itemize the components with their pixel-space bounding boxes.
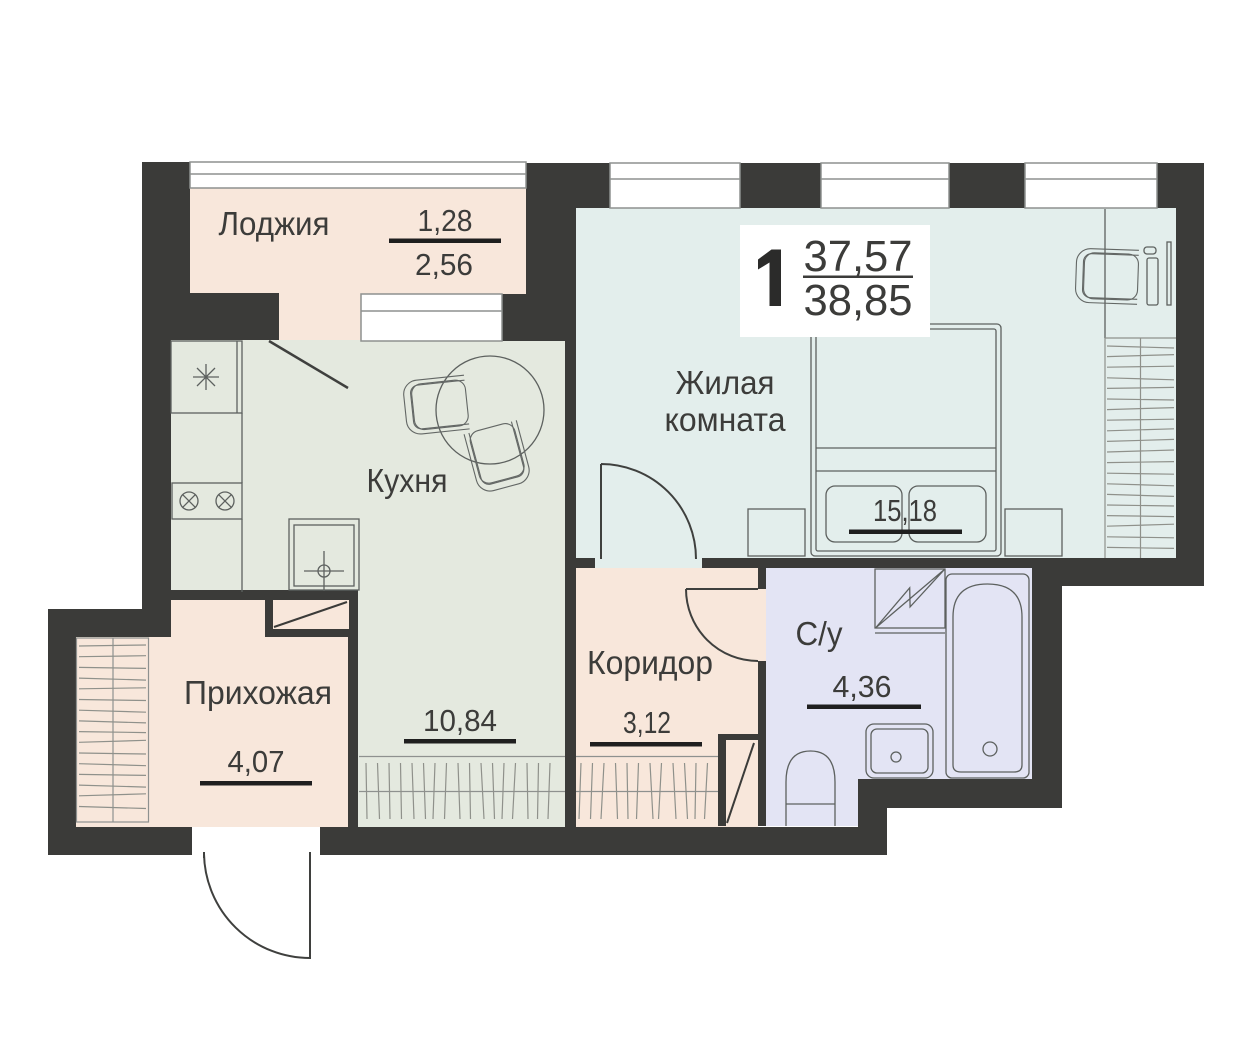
svg-text:2,56: 2,56 (415, 247, 473, 282)
svg-text:Лоджия: Лоджия (219, 205, 330, 242)
svg-text:Кухня: Кухня (367, 462, 448, 499)
svg-text:Жилая: Жилая (676, 364, 775, 401)
svg-text:Прихожая: Прихожая (184, 674, 332, 711)
svg-text:Коридор: Коридор (587, 644, 713, 681)
svg-text:4,36: 4,36 (833, 669, 892, 704)
svg-text:15,18: 15,18 (873, 493, 937, 528)
svg-text:1,28: 1,28 (418, 203, 473, 238)
svg-text:38,85: 38,85 (804, 276, 913, 325)
svg-text:комната: комната (665, 401, 787, 438)
svg-text:37,57: 37,57 (804, 232, 913, 281)
svg-text:10,84: 10,84 (423, 703, 497, 738)
svg-text:4,07: 4,07 (228, 744, 285, 779)
svg-text:3,12: 3,12 (623, 705, 671, 740)
svg-text:С/у: С/у (796, 615, 843, 652)
